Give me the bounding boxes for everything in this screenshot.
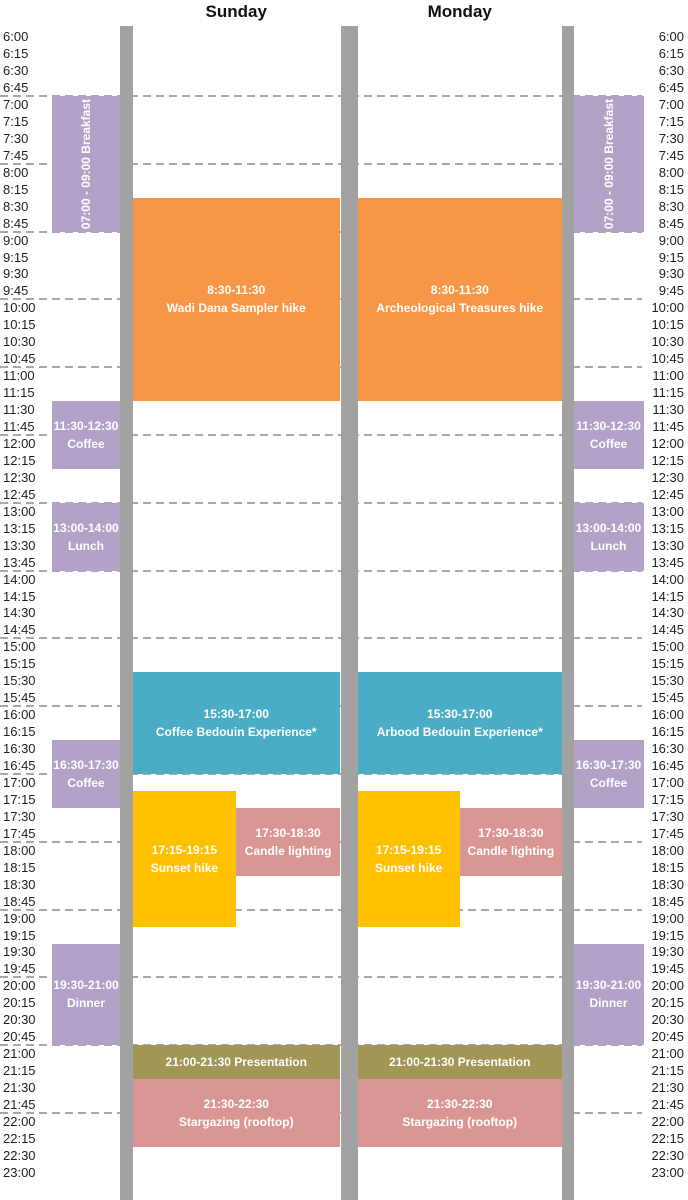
time-tick-left: 20:30	[3, 1011, 49, 1028]
time-tick-left: 7:45	[3, 147, 49, 164]
event-label-line: 13:00-14:00	[53, 519, 118, 537]
time-tick-left: 9:00	[3, 232, 49, 249]
time-tick-left: 6:15	[3, 45, 49, 62]
time-tick-right: 6:45	[638, 79, 684, 96]
event-block-candle-lighting: 17:30-18:30Candle lighting	[236, 808, 340, 876]
time-tick-right: 10:15	[638, 316, 684, 333]
time-tick-right: 15:30	[638, 672, 684, 689]
time-tick-right: 9:00	[638, 232, 684, 249]
time-tick-left: 14:00	[3, 571, 49, 588]
event-label-line: 11:30-12:30	[54, 417, 119, 435]
time-tick-left: 8:00	[3, 164, 49, 181]
event-label-line: 07:00 - 09:00 Breakfast	[80, 99, 92, 229]
event-label-line: 21:00-21:30 Presentation	[389, 1053, 530, 1071]
time-tick-left: 17:00	[3, 774, 49, 791]
time-tick-left: 19:00	[3, 910, 49, 927]
time-tick-left: 18:30	[3, 876, 49, 893]
event-block-21-00-21-30-presentation: 21:00-21:30 Presentation	[358, 1045, 563, 1079]
event-label-line: Sunset hike	[151, 859, 218, 877]
event-label-line: Coffee	[590, 774, 627, 792]
time-tick-right: 22:00	[638, 1113, 684, 1130]
time-tick-right: 19:15	[638, 927, 684, 944]
time-tick-right: 6:15	[638, 45, 684, 62]
time-tick-right: 13:30	[638, 537, 684, 554]
time-tick-right: 16:30	[638, 740, 684, 757]
time-tick-left: 10:30	[3, 333, 49, 350]
event-label-line: Dinner	[589, 994, 627, 1012]
time-tick-right: 12:30	[638, 469, 684, 486]
time-tick-left: 11:45	[3, 418, 49, 435]
time-tick-left: 19:45	[3, 960, 49, 977]
time-tick-left: 7:15	[3, 113, 49, 130]
event-label-line: Coffee Bedouin Experience*	[156, 723, 317, 741]
event-block-21-00-21-30-presentation: 21:00-21:30 Presentation	[133, 1045, 341, 1079]
day-separator-bar	[341, 26, 358, 1200]
time-tick-left: 12:30	[3, 469, 49, 486]
meal-block-coffee-morning-right: 11:30-12:30Coffee	[574, 401, 644, 469]
event-label-line: Sunset hike	[375, 859, 442, 877]
time-tick-right: 16:00	[638, 706, 684, 723]
event-label-line: 17:15-19:15	[376, 841, 441, 859]
time-tick-left: 20:15	[3, 994, 49, 1011]
hour-gridline	[0, 909, 642, 911]
time-tick-right: 10:45	[638, 350, 684, 367]
time-tick-left: 21:00	[3, 1045, 49, 1062]
time-tick-left: 10:15	[3, 316, 49, 333]
event-label-line: 16:30-17:30	[53, 756, 118, 774]
hour-gridline	[0, 637, 642, 639]
time-tick-left: 20:45	[3, 1028, 49, 1045]
time-tick-left: 22:00	[3, 1113, 49, 1130]
time-tick-right: 16:45	[638, 757, 684, 774]
event-label-line: 8:30-11:30	[431, 281, 489, 299]
time-tick-left: 16:45	[3, 757, 49, 774]
time-tick-left: 21:15	[3, 1062, 49, 1079]
event-label-line: Coffee	[67, 774, 104, 792]
time-tick-left: 13:00	[3, 503, 49, 520]
time-tick-left: 15:45	[3, 689, 49, 706]
event-block-coffee-bedouin-experience-: 15:30-17:00Coffee Bedouin Experience*	[133, 672, 341, 774]
meal-block-lunch-right: 13:00-14:00Lunch	[574, 503, 644, 571]
time-tick-right: 17:30	[638, 808, 684, 825]
time-tick-left: 11:30	[3, 401, 49, 418]
time-tick-left: 15:30	[3, 672, 49, 689]
event-label-line: 17:15-19:15	[152, 841, 217, 859]
time-tick-left: 17:15	[3, 791, 49, 808]
time-tick-right: 9:45	[638, 282, 684, 299]
event-label-line: 15:30-17:00	[427, 705, 492, 723]
time-tick-left: 21:30	[3, 1079, 49, 1096]
event-label-line: Stargazing (rooftop)	[402, 1113, 517, 1131]
event-label-line: 17:30-18:30	[255, 824, 320, 842]
event-label-line: Candle lighting	[245, 842, 332, 860]
time-tick-right: 22:15	[638, 1130, 684, 1147]
time-tick-left: 23:00	[3, 1164, 49, 1181]
event-label-line: Wadi Dana Sampler hike	[167, 299, 306, 317]
event-label-line: 11:30-12:30	[576, 417, 641, 435]
meal-block-dinner-left: 19:30-21:00Dinner	[52, 944, 120, 1046]
time-tick-left: 12:00	[3, 435, 49, 452]
meal-block-coffee-morning-left: 11:30-12:30Coffee	[52, 401, 120, 469]
time-tick-left: 8:45	[3, 215, 49, 232]
event-label-line: Dinner	[67, 994, 105, 1012]
time-tick-left: 15:00	[3, 638, 49, 655]
time-tick-left: 20:00	[3, 977, 49, 994]
time-tick-right: 6:30	[638, 62, 684, 79]
time-tick-left: 18:15	[3, 859, 49, 876]
time-tick-right: 20:45	[638, 1028, 684, 1045]
time-tick-left: 9:45	[3, 282, 49, 299]
time-tick-right: 18:45	[638, 893, 684, 910]
time-tick-right: 14:45	[638, 621, 684, 638]
time-tick-right: 18:00	[638, 842, 684, 859]
time-tick-right: 12:00	[638, 435, 684, 452]
event-label-line: Lunch	[591, 537, 627, 555]
event-label-line: Candle lighting	[468, 842, 555, 860]
time-tick-right: 7:00	[638, 96, 684, 113]
meal-block-coffee-afternoon-right: 16:30-17:30Coffee	[574, 740, 644, 808]
time-tick-right: 12:15	[638, 452, 684, 469]
event-label-line: 21:30-22:30	[427, 1095, 492, 1113]
meal-block-coffee-afternoon-left: 16:30-17:30Coffee	[52, 740, 120, 808]
time-tick-right: 21:15	[638, 1062, 684, 1079]
event-label-line: 16:30-17:30	[576, 756, 641, 774]
time-tick-left: 18:00	[3, 842, 49, 859]
event-label-line: 8:30-11:30	[207, 281, 265, 299]
event-block-arbood-bedouin-experience-: 15:30-17:00Arbood Bedouin Experience*	[358, 672, 563, 774]
time-tick-right: 21:00	[638, 1045, 684, 1062]
time-tick-left: 11:15	[3, 384, 49, 401]
time-tick-right: 17:15	[638, 791, 684, 808]
time-tick-right: 6:00	[638, 28, 684, 45]
time-tick-right: 8:15	[638, 181, 684, 198]
event-block-sunset-hike: 17:15-19:15Sunset hike	[133, 791, 237, 927]
time-tick-left: 14:30	[3, 605, 49, 622]
time-tick-left: 22:15	[3, 1130, 49, 1147]
event-block-stargazing-rooftop-: 21:30-22:30Stargazing (rooftop)	[133, 1079, 341, 1147]
time-tick-right: 7:30	[638, 130, 684, 147]
time-tick-left: 9:15	[3, 249, 49, 266]
time-tick-right: 20:00	[638, 977, 684, 994]
day-separator-bar	[562, 26, 574, 1200]
time-tick-left: 10:45	[3, 350, 49, 367]
time-tick-right: 19:45	[638, 960, 684, 977]
day-separator-bar	[120, 26, 133, 1200]
meal-block-breakfast-right: 07:00 - 09:00 Breakfast	[574, 96, 644, 232]
time-tick-right: 11:45	[638, 418, 684, 435]
time-tick-left: 17:45	[3, 825, 49, 842]
event-label-line: Coffee	[590, 435, 627, 453]
time-tick-left: 13:45	[3, 554, 49, 571]
event-block-candle-lighting: 17:30-18:30Candle lighting	[460, 808, 562, 876]
time-tick-left: 7:30	[3, 130, 49, 147]
time-tick-left: 10:00	[3, 299, 49, 316]
time-tick-left: 8:15	[3, 181, 49, 198]
event-label-line: Stargazing (rooftop)	[179, 1113, 294, 1131]
day-header-sunday: Sunday	[133, 2, 341, 22]
event-block-archeological-treasures-hike: 8:30-11:30Archeological Treasures hike	[358, 198, 563, 401]
time-tick-left: 21:45	[3, 1096, 49, 1113]
event-label-line: 21:30-22:30	[204, 1095, 269, 1113]
meal-block-breakfast-left: 07:00 - 09:00 Breakfast	[52, 96, 120, 232]
time-tick-right: 16:15	[638, 723, 684, 740]
time-tick-right: 13:00	[638, 503, 684, 520]
time-tick-right: 8:00	[638, 164, 684, 181]
time-tick-right: 10:30	[638, 333, 684, 350]
time-tick-right: 13:45	[638, 554, 684, 571]
time-tick-right: 11:30	[638, 401, 684, 418]
time-tick-left: 16:30	[3, 740, 49, 757]
time-tick-right: 12:45	[638, 486, 684, 503]
event-label-line: 13:00-14:00	[576, 519, 641, 537]
time-tick-left: 14:45	[3, 621, 49, 638]
time-tick-left: 19:30	[3, 944, 49, 961]
time-tick-left: 14:15	[3, 588, 49, 605]
event-label-line: 15:30-17:00	[204, 705, 269, 723]
event-label-line: 19:30-21:00	[53, 976, 118, 994]
event-label-line: 17:30-18:30	[478, 824, 543, 842]
event-label-line: 21:00-21:30 Presentation	[166, 1053, 307, 1071]
time-tick-left: 7:00	[3, 96, 49, 113]
time-tick-right: 14:30	[638, 605, 684, 622]
time-tick-left: 13:30	[3, 537, 49, 554]
weekly-schedule-chart: 8:30-11:30Wadi Dana Sampler hike15:30-17…	[0, 0, 688, 1200]
event-block-sunset-hike: 17:15-19:15Sunset hike	[358, 791, 460, 927]
time-tick-left: 6:45	[3, 79, 49, 96]
time-tick-left: 18:45	[3, 893, 49, 910]
time-tick-right: 9:30	[638, 266, 684, 283]
time-tick-right: 19:30	[638, 944, 684, 961]
time-tick-left: 16:15	[3, 723, 49, 740]
meal-block-lunch-left: 13:00-14:00Lunch	[52, 503, 120, 571]
time-tick-left: 16:00	[3, 706, 49, 723]
time-tick-right: 10:00	[638, 299, 684, 316]
event-label-line: 07:00 - 09:00 Breakfast	[603, 99, 615, 229]
time-tick-left: 17:30	[3, 808, 49, 825]
time-tick-right: 17:45	[638, 825, 684, 842]
time-tick-right: 21:45	[638, 1096, 684, 1113]
time-tick-left: 19:15	[3, 927, 49, 944]
time-tick-right: 23:00	[638, 1164, 684, 1181]
time-tick-right: 7:15	[638, 113, 684, 130]
time-tick-right: 11:15	[638, 384, 684, 401]
time-tick-right: 13:15	[638, 520, 684, 537]
time-tick-right: 20:30	[638, 1011, 684, 1028]
time-tick-right: 20:15	[638, 994, 684, 1011]
time-tick-right: 19:00	[638, 910, 684, 927]
event-block-wadi-dana-sampler-hike: 8:30-11:30Wadi Dana Sampler hike	[133, 198, 341, 401]
event-label-line: Coffee	[67, 435, 104, 453]
time-tick-right: 18:30	[638, 876, 684, 893]
time-tick-left: 11:00	[3, 367, 49, 384]
time-tick-right: 15:00	[638, 638, 684, 655]
time-tick-left: 15:15	[3, 655, 49, 672]
time-tick-right: 15:15	[638, 655, 684, 672]
event-label-line: Archeological Treasures hike	[376, 299, 543, 317]
time-tick-right: 7:45	[638, 147, 684, 164]
time-tick-right: 18:15	[638, 859, 684, 876]
time-tick-left: 12:45	[3, 486, 49, 503]
time-tick-right: 9:15	[638, 249, 684, 266]
time-tick-left: 13:15	[3, 520, 49, 537]
time-tick-right: 17:00	[638, 774, 684, 791]
event-label-line: Lunch	[68, 537, 104, 555]
time-tick-right: 15:45	[638, 689, 684, 706]
time-tick-right: 22:30	[638, 1147, 684, 1164]
meal-block-dinner-right: 19:30-21:00Dinner	[574, 944, 644, 1046]
event-block-stargazing-rooftop-: 21:30-22:30Stargazing (rooftop)	[358, 1079, 563, 1147]
time-tick-left: 12:15	[3, 452, 49, 469]
time-tick-right: 8:30	[638, 198, 684, 215]
time-tick-left: 6:30	[3, 62, 49, 79]
time-tick-left: 22:30	[3, 1147, 49, 1164]
time-tick-left: 6:00	[3, 28, 49, 45]
event-label-line: 19:30-21:00	[576, 976, 641, 994]
time-tick-right: 11:00	[638, 367, 684, 384]
time-tick-left: 9:30	[3, 266, 49, 283]
day-header-monday: Monday	[358, 2, 563, 22]
time-tick-right: 21:30	[638, 1079, 684, 1096]
time-tick-left: 8:30	[3, 198, 49, 215]
time-tick-right: 8:45	[638, 215, 684, 232]
event-label-line: Arbood Bedouin Experience*	[377, 723, 543, 741]
time-tick-right: 14:00	[638, 571, 684, 588]
time-tick-right: 14:15	[638, 588, 684, 605]
